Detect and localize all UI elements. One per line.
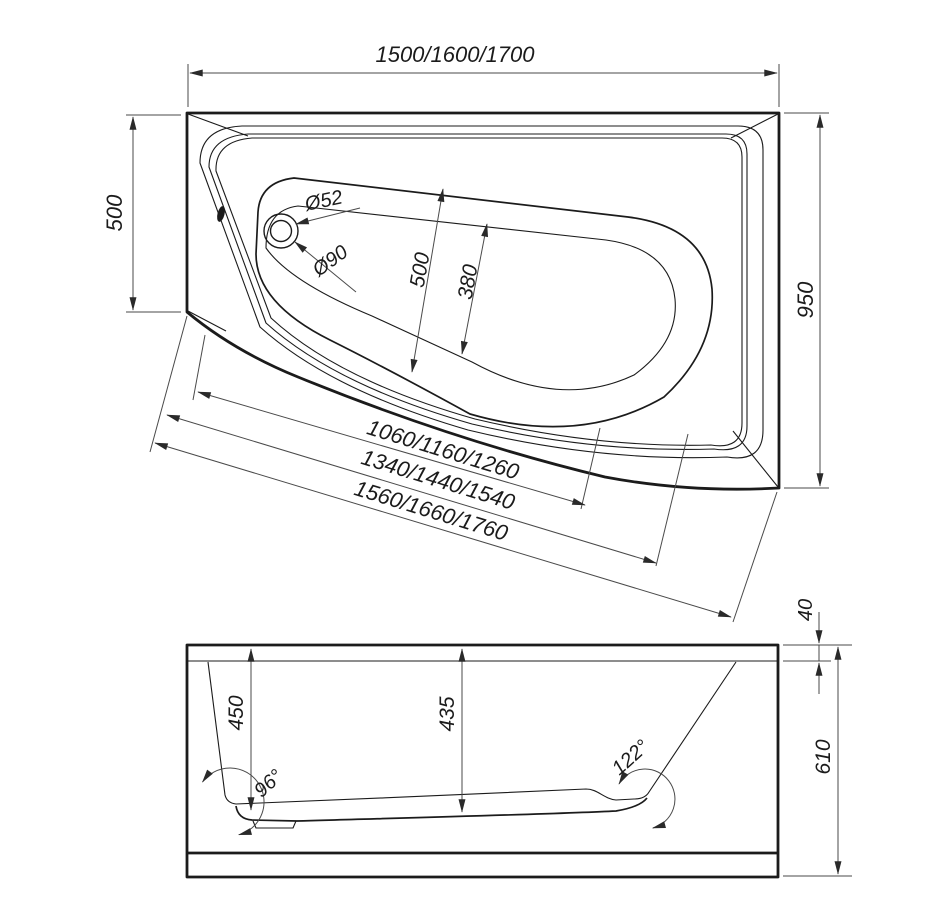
- tub-interior-profile: [208, 662, 736, 804]
- drain-flange-circle: [264, 214, 298, 248]
- rim-contours: [200, 126, 763, 458]
- left-wall-angle-label: 96°: [250, 765, 287, 802]
- drain-flange-diameter-label: Ø90: [308, 241, 352, 282]
- diagonal-dimension-chains: 1060/1160/1260 1340/1440/1540 1560/1660/…: [150, 316, 777, 622]
- drain-sump: [253, 821, 296, 828]
- dim-depth-left: 450: [225, 649, 251, 810]
- side-view: 96° 122° 450 435 40 610: [187, 599, 852, 877]
- dim-overall-length: 1500/1600/1700: [188, 42, 779, 107]
- dim-basin-width: 500: [406, 189, 443, 372]
- dim-floor-width: 380: [454, 224, 487, 354]
- floor-width-label: 380: [454, 262, 483, 301]
- overall-length-label: 1500/1600/1700: [375, 42, 535, 67]
- dim-left-end-width: 500: [102, 115, 181, 312]
- side-outer-body: [187, 645, 778, 877]
- technical-drawing-page: Ø52 Ø90 1500/1600/1700 500 950 500: [0, 0, 936, 908]
- drain: Ø52 Ø90: [264, 186, 360, 292]
- depth-center-label: 435: [436, 696, 459, 731]
- bathtub-drawing-svg: Ø52 Ø90 1500/1600/1700 500 950 500: [0, 0, 936, 908]
- basin-width-label: 500: [406, 250, 435, 289]
- dim-overall-width: 950: [784, 113, 829, 488]
- dim-overall-height: 610: [783, 647, 852, 876]
- dim-rim-height: 40: [783, 599, 852, 694]
- overall-height-label: 610: [812, 739, 835, 774]
- overflow-mark: [216, 205, 227, 222]
- drain-hole-diameter-label: Ø52: [302, 186, 345, 216]
- depth-left-label: 450: [225, 695, 248, 730]
- drain-hole-circle: [271, 221, 292, 242]
- dim-depth-center: 435: [436, 649, 462, 812]
- top-view: Ø52 Ø90 1500/1600/1700 500 950 500: [102, 42, 829, 622]
- left-end-width-label: 500: [102, 194, 127, 231]
- rim-height-label: 40: [795, 599, 817, 621]
- left-angle-arc: [203, 768, 265, 835]
- basin-contour: [256, 178, 712, 427]
- right-wall-angle-label: 122°: [608, 736, 653, 780]
- overall-width-label: 950: [793, 281, 818, 318]
- corner-miter-lines: [188, 114, 778, 487]
